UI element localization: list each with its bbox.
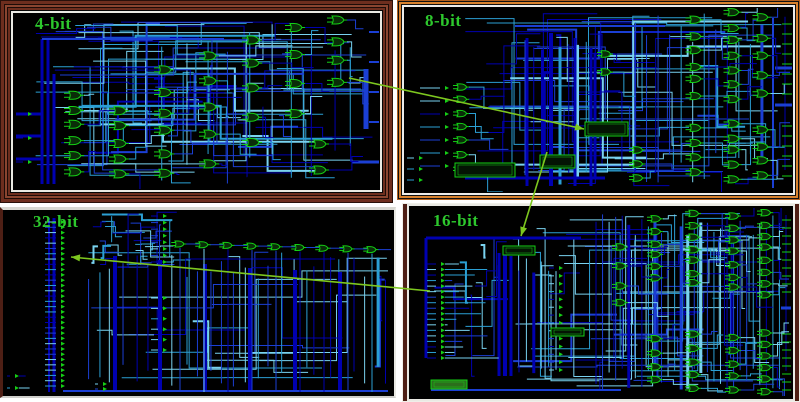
schematic-canvas-16bit: 16-bit: [411, 208, 791, 396]
schematic-canvas-4bit: 4-bit: [14, 14, 379, 189]
schematic-canvas-8bit: 8-bit: [405, 8, 792, 192]
panel-label-8bit: 8-bit: [425, 11, 462, 31]
circuit-drawing-8bit: [405, 8, 792, 192]
panel-32bit: 32-bit: [0, 207, 396, 398]
circuit-drawing-16bit: [411, 208, 791, 396]
panel-label-32bit: 32-bit: [33, 212, 79, 232]
edge-stubs: [782, 24, 792, 176]
wire-mesh: [88, 212, 388, 377]
carry-chain: [171, 241, 391, 392]
schematic-canvas-32bit: 32-bit: [3, 210, 394, 396]
panel-8bit: 8-bit: [397, 0, 800, 200]
panel-label-16bit: 16-bit: [433, 211, 479, 231]
pin-marks: [16, 112, 32, 164]
circuit-drawing-4bit: [14, 14, 379, 189]
edge-stubs: [369, 32, 379, 122]
panel-4bit: 4-bit: [0, 0, 393, 203]
panel-label-4bit: 4-bit: [35, 14, 72, 34]
pin-marks: [407, 86, 449, 182]
circuit-drawing-32bit: [3, 210, 394, 396]
panel-16bit: 16-bit: [402, 203, 800, 402]
schematic-figure: 4-bit 8-bit 32-bit 16-bit: [0, 0, 800, 402]
